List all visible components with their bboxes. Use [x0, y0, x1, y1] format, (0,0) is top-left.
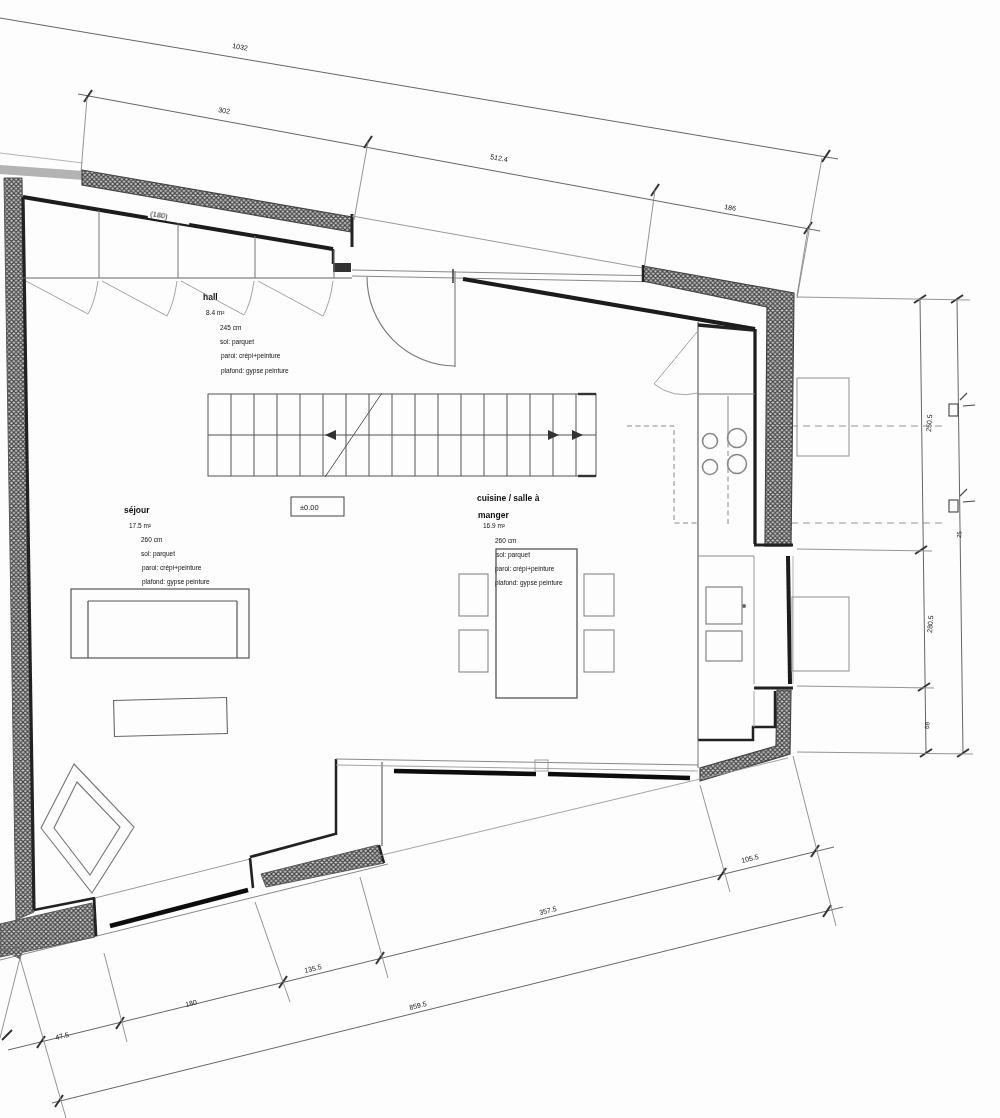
svg-text:paroi: crépi+peinture: paroi: crépi+peinture	[142, 564, 202, 572]
svg-text:paroi: crépi+peinture: paroi: crépi+peinture	[495, 565, 555, 573]
svg-text:sol: parquet: sol: parquet	[496, 551, 530, 559]
svg-text:paroi: crépi+peinture: paroi: crépi+peinture	[221, 352, 281, 360]
svg-text:280.5: 280.5	[926, 615, 934, 633]
svg-text:sol: parquet: sol: parquet	[141, 550, 175, 558]
svg-text:260 cm: 260 cm	[141, 536, 162, 543]
svg-text:17.5 m²: 17.5 m²	[129, 522, 152, 529]
svg-text:25: 25	[956, 530, 962, 538]
svg-text:68: 68	[923, 721, 931, 729]
svg-text:260 cm: 260 cm	[495, 537, 516, 544]
svg-text:sol: parquet: sol: parquet	[220, 338, 254, 346]
svg-text:8.4 m²: 8.4 m²	[206, 309, 225, 316]
svg-text:cuisine / salle à: cuisine / salle à	[477, 493, 540, 503]
svg-text:250.5: 250.5	[925, 414, 933, 432]
svg-text:16.9 m²: 16.9 m²	[483, 522, 506, 529]
svg-text:±0.00: ±0.00	[300, 503, 319, 512]
svg-text:manger: manger	[478, 510, 509, 520]
svg-text:plafond: gypse peinture: plafond: gypse peinture	[495, 579, 563, 587]
svg-text:plafond: gypse peinture: plafond: gypse peinture	[221, 367, 289, 375]
svg-text:séjour: séjour	[124, 505, 150, 515]
svg-text:245 cm: 245 cm	[220, 324, 241, 331]
svg-text:plafond: gypse peinture: plafond: gypse peinture	[142, 578, 210, 586]
